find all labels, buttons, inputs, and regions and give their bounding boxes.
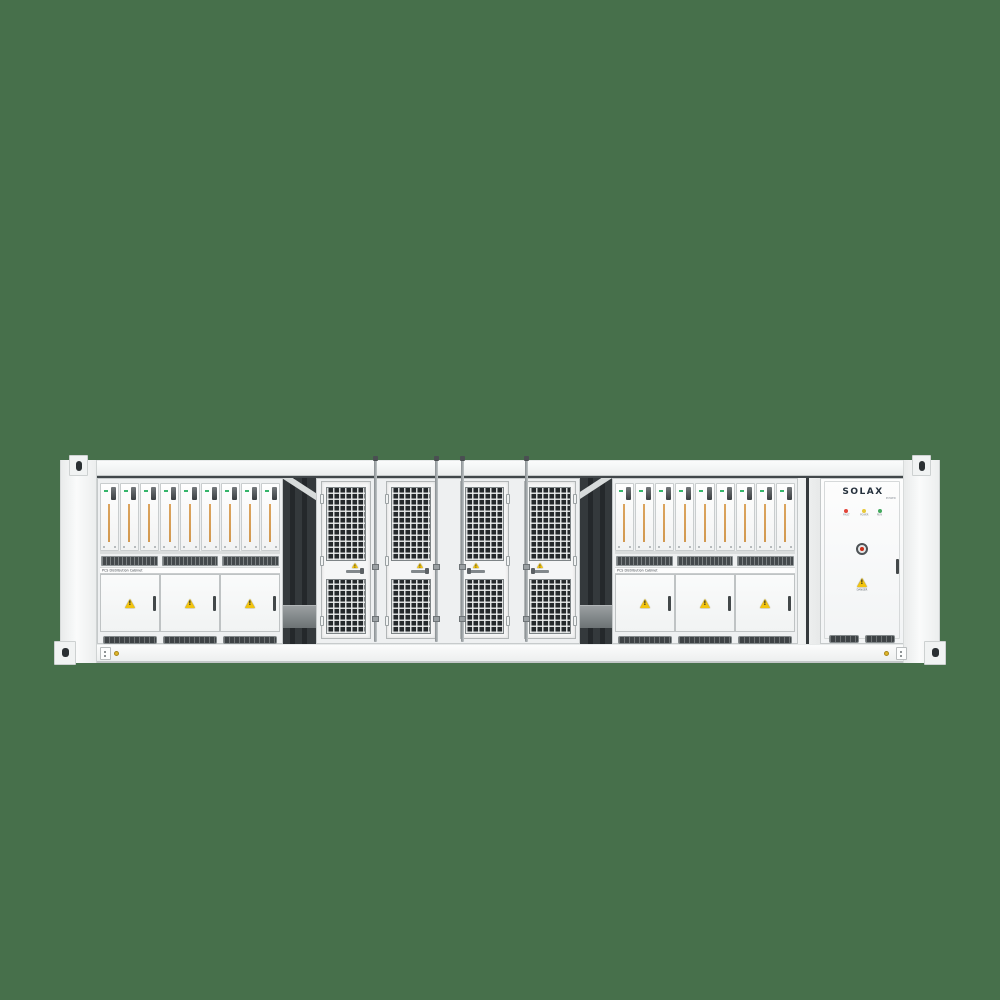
lock-rod-bracket xyxy=(433,616,440,622)
cabinet-door xyxy=(615,574,675,632)
module-status-led xyxy=(184,490,188,492)
module-status-led xyxy=(205,490,209,492)
door-lock-rod xyxy=(461,456,464,642)
module-stripe xyxy=(623,504,625,542)
module-screw xyxy=(698,546,700,548)
pcs-module xyxy=(776,483,795,551)
cabinet-door xyxy=(220,574,280,632)
module-stripe xyxy=(684,504,686,542)
bottom-rail xyxy=(60,644,940,663)
module-screw xyxy=(779,546,781,548)
mesh-screen-upper xyxy=(391,487,431,561)
module-status-led xyxy=(740,490,744,492)
lock-rod-bracket xyxy=(523,616,530,622)
door-hinge xyxy=(506,494,510,504)
module-screw xyxy=(669,546,671,548)
module-vent-slot xyxy=(111,487,116,500)
ground-point xyxy=(884,651,889,656)
module-vent-slot xyxy=(131,487,136,500)
vent-grille xyxy=(162,556,219,566)
module-screw xyxy=(719,546,721,548)
module-screw xyxy=(638,546,640,548)
vent-grille xyxy=(737,556,794,566)
module-screw xyxy=(244,546,246,548)
module-status-led xyxy=(760,490,764,492)
module-stripe xyxy=(249,504,251,542)
power-led-dot xyxy=(862,509,866,513)
module-screw xyxy=(790,546,792,548)
mesh-screen-lower xyxy=(465,579,504,634)
pcs-module xyxy=(261,483,280,551)
pillar-slit xyxy=(806,478,809,644)
rack-bottom-vents xyxy=(103,636,277,644)
warning-triangle-icon xyxy=(760,599,770,608)
handle-pivot xyxy=(467,568,471,574)
module-screw xyxy=(143,546,145,548)
warning-triangle-icon xyxy=(473,563,479,568)
service-plate xyxy=(100,647,111,660)
cabinet-bottom-vents xyxy=(829,635,895,643)
pcs-module-row xyxy=(615,483,795,551)
pcs-module xyxy=(140,483,159,551)
module-screw xyxy=(154,546,156,548)
cabinet-door xyxy=(675,574,735,632)
module-screw xyxy=(759,546,761,548)
mesh-screen-upper xyxy=(465,487,504,561)
danger-label: DANGER xyxy=(842,589,883,592)
module-status-led xyxy=(225,490,229,492)
module-vent-slot xyxy=(151,487,156,500)
module-screw xyxy=(174,546,176,548)
module-screw xyxy=(114,546,116,548)
module-status-led xyxy=(124,490,128,492)
lock-rod-bracket xyxy=(433,564,440,570)
cabinet-door-handle xyxy=(213,596,216,611)
diagonal-brace xyxy=(580,478,612,501)
warning-triangle-icon xyxy=(185,599,195,608)
module-status-led xyxy=(699,490,703,492)
pcs-module xyxy=(120,483,139,551)
casting-hole xyxy=(62,648,69,657)
vent-grille xyxy=(865,635,895,643)
lock-rod-bracket xyxy=(372,564,379,570)
module-status-led xyxy=(780,490,784,492)
handle-pivot xyxy=(360,568,364,574)
module-stripe xyxy=(229,504,231,542)
scene-background: PCS Distribution Cabinet PCS Distributio… xyxy=(0,0,1000,1000)
fault-led-dot xyxy=(844,509,848,513)
lock-rod-bracket xyxy=(523,564,530,570)
pcs-module xyxy=(160,483,179,551)
cable-duct xyxy=(580,605,612,628)
module-vent-slot xyxy=(646,487,651,500)
door-hinge xyxy=(385,556,389,566)
danger-sticker: DANGER xyxy=(821,578,903,594)
module-stripe xyxy=(704,504,706,542)
module-screw xyxy=(629,546,631,548)
module-stripe xyxy=(169,504,171,542)
module-screw xyxy=(134,546,136,548)
pcs-module xyxy=(615,483,634,551)
module-vent-slot xyxy=(686,487,691,500)
power-led-label: POWER xyxy=(860,514,868,516)
cabinet-door-handle xyxy=(153,596,156,611)
door-hinge xyxy=(573,616,577,626)
door-hinge xyxy=(385,616,389,626)
module-screw xyxy=(204,546,206,548)
door-hinge xyxy=(320,494,324,504)
pcs-module xyxy=(100,483,119,551)
module-status-led xyxy=(265,490,269,492)
warning-triangle-icon xyxy=(537,563,543,568)
vent-grille xyxy=(222,556,279,566)
rack-rail xyxy=(615,551,795,554)
vent-grille xyxy=(677,556,734,566)
pcs-rack-left: PCS Distribution Cabinet xyxy=(97,478,283,644)
module-stripe xyxy=(643,504,645,542)
module-stripe xyxy=(128,504,130,542)
control-cabinet-door xyxy=(824,481,900,639)
module-screw xyxy=(618,546,620,548)
cabinet-door xyxy=(100,574,160,632)
pcs-module xyxy=(241,483,260,551)
cabinet-door-handle xyxy=(896,559,899,574)
rack-bottom-vents xyxy=(618,636,792,644)
module-stripe xyxy=(764,504,766,542)
frame-pillar xyxy=(798,478,820,644)
module-vent-slot xyxy=(666,487,671,500)
door-hinge xyxy=(506,616,510,626)
mesh-door xyxy=(524,481,576,639)
module-stripe xyxy=(784,504,786,542)
module-stripe xyxy=(744,504,746,542)
door-lock-rod xyxy=(525,456,528,642)
mesh-screen-upper xyxy=(326,487,366,561)
module-vent-slot xyxy=(767,487,772,500)
module-screw xyxy=(770,546,772,548)
module-vent-slot xyxy=(192,487,197,500)
pcs-module xyxy=(675,483,694,551)
mesh-door-handle xyxy=(469,570,485,573)
handle-pivot xyxy=(531,568,535,574)
corner-post-right xyxy=(903,460,940,663)
cabinet-door-handle xyxy=(668,596,671,611)
module-screw xyxy=(123,546,125,548)
lock-rod-bracket xyxy=(372,616,379,622)
mesh-screen-upper xyxy=(529,487,571,561)
pcs-module xyxy=(180,483,199,551)
pcs-module-row xyxy=(100,483,280,551)
door-lock-rod xyxy=(435,456,438,642)
pcs-module xyxy=(655,483,674,551)
handle-pivot xyxy=(425,568,429,574)
lock-rod-cap xyxy=(524,456,529,461)
module-stripe xyxy=(269,504,271,542)
vent-grille xyxy=(101,556,158,566)
vent-grille xyxy=(616,556,673,566)
frame-gap-right xyxy=(580,478,612,644)
vent-grille xyxy=(223,636,277,644)
vent-grille xyxy=(163,636,217,644)
module-screw xyxy=(649,546,651,548)
module-status-led xyxy=(720,490,724,492)
module-stripe xyxy=(148,504,150,542)
casting-hole xyxy=(919,461,925,471)
pcs-module xyxy=(201,483,220,551)
mesh-screen-lower xyxy=(326,579,366,634)
mesh-door-handle xyxy=(533,570,549,573)
vent-grille xyxy=(103,636,157,644)
casting-hole xyxy=(76,461,82,471)
module-status-led xyxy=(679,490,683,492)
module-vent-slot xyxy=(727,487,732,500)
cabinet-door-handle xyxy=(788,596,791,611)
lock-rod-cap xyxy=(434,456,439,461)
rack-rail xyxy=(100,551,280,554)
run-led: RUN xyxy=(874,509,885,519)
module-screw xyxy=(750,546,752,548)
casting-hole xyxy=(932,648,939,657)
module-status-led xyxy=(639,490,643,492)
module-status-led xyxy=(245,490,249,492)
module-vent-slot xyxy=(747,487,752,500)
frame-gap-left xyxy=(280,478,316,644)
warning-triangle-icon xyxy=(857,578,867,587)
rack-label-strip: PCS Distribution Cabinet xyxy=(615,567,795,574)
rack-label-strip: PCS Distribution Cabinet xyxy=(100,567,280,574)
module-screw xyxy=(264,546,266,548)
estop-ring xyxy=(856,543,868,555)
module-screw xyxy=(103,546,105,548)
brand-block: SOLAX POWER xyxy=(821,488,905,503)
cabinet-door-handle xyxy=(273,596,276,611)
door-hinge xyxy=(320,616,324,626)
status-led-row: FAULTPOWERRUN xyxy=(839,509,885,519)
solax-logo-sub: POWER xyxy=(858,497,896,500)
module-stripe xyxy=(108,504,110,542)
module-screw xyxy=(710,546,712,548)
cabinet-door xyxy=(160,574,220,632)
lock-rod-cap xyxy=(460,456,465,461)
module-vent-slot xyxy=(272,487,277,500)
service-plate xyxy=(896,647,907,660)
fault-led-label: FAULT xyxy=(843,514,850,516)
storage-container: PCS Distribution Cabinet PCS Distributio… xyxy=(60,455,940,665)
module-screw xyxy=(183,546,185,548)
module-screw xyxy=(224,546,226,548)
door-hinge xyxy=(320,556,324,566)
rack-vent-band xyxy=(616,556,794,566)
module-vent-slot xyxy=(787,487,792,500)
module-status-led xyxy=(659,490,663,492)
lock-rod-bracket xyxy=(459,564,466,570)
top-rail xyxy=(60,460,940,476)
rack-label: PCS Distribution Cabinet xyxy=(617,569,657,572)
module-stripe xyxy=(189,504,191,542)
warning-triangle-icon xyxy=(640,599,650,608)
mesh-door xyxy=(460,481,509,639)
module-screw xyxy=(689,546,691,548)
vent-grille xyxy=(618,636,672,644)
vent-grille xyxy=(738,636,792,644)
battery-bay-panel xyxy=(316,478,580,644)
diagonal-brace xyxy=(280,478,316,502)
module-vent-slot xyxy=(707,487,712,500)
pcs-module xyxy=(716,483,735,551)
module-screw xyxy=(163,546,165,548)
lock-rod-bracket xyxy=(459,616,466,622)
door-hinge xyxy=(385,494,389,504)
rack-doors xyxy=(615,574,795,632)
warning-triangle-icon xyxy=(700,599,710,608)
mesh-screen-lower xyxy=(391,579,431,634)
module-stripe xyxy=(724,504,726,542)
corner-post-left xyxy=(60,460,97,663)
lock-rod-cap xyxy=(373,456,378,461)
mesh-door xyxy=(386,481,436,639)
run-led-label: RUN xyxy=(877,514,882,516)
ground-point xyxy=(114,651,119,656)
estop-core xyxy=(860,547,864,551)
cable-duct xyxy=(280,605,316,628)
pcs-module xyxy=(736,483,755,551)
module-screw xyxy=(658,546,660,548)
module-screw xyxy=(678,546,680,548)
module-screw xyxy=(730,546,732,548)
pcs-rack-right: PCS Distribution Cabinet xyxy=(612,478,798,644)
module-screw xyxy=(275,546,277,548)
module-status-led xyxy=(104,490,108,492)
module-status-led xyxy=(619,490,623,492)
vent-grille xyxy=(678,636,732,644)
module-screw xyxy=(195,546,197,548)
rack-label: PCS Distribution Cabinet xyxy=(102,569,142,572)
module-screw xyxy=(255,546,257,548)
pcs-module xyxy=(756,483,775,551)
module-stripe xyxy=(663,504,665,542)
module-vent-slot xyxy=(212,487,217,500)
mesh-screen-lower xyxy=(529,579,571,634)
mesh-door xyxy=(321,481,371,639)
rack-doors xyxy=(100,574,280,632)
door-hinge xyxy=(506,556,510,566)
module-vent-slot xyxy=(232,487,237,500)
cabinet-door-handle xyxy=(728,596,731,611)
warning-triangle-icon xyxy=(352,563,358,568)
module-vent-slot xyxy=(171,487,176,500)
door-hinge xyxy=(573,556,577,566)
run-led-dot xyxy=(878,509,882,513)
module-screw xyxy=(235,546,237,548)
rack-vent-band xyxy=(101,556,279,566)
power-led: POWER xyxy=(855,509,874,519)
emergency-stop-button xyxy=(821,543,903,555)
warning-triangle-icon xyxy=(245,599,255,608)
pcs-module xyxy=(695,483,714,551)
pcs-module xyxy=(635,483,654,551)
fault-led: FAULT xyxy=(839,509,854,519)
module-screw xyxy=(739,546,741,548)
door-hinge xyxy=(573,494,577,504)
pcs-module xyxy=(221,483,240,551)
door-lock-rod xyxy=(374,456,377,642)
module-status-led xyxy=(144,490,148,492)
control-cabinet: SOLAX POWER FAULTPOWERRUN DANGER xyxy=(820,478,904,644)
warning-triangle-icon xyxy=(125,599,135,608)
module-screw xyxy=(215,546,217,548)
module-vent-slot xyxy=(626,487,631,500)
module-vent-slot xyxy=(252,487,257,500)
warning-triangle-icon xyxy=(417,563,423,568)
module-status-led xyxy=(164,490,168,492)
module-stripe xyxy=(209,504,211,542)
cabinet-door xyxy=(735,574,795,632)
vent-grille xyxy=(829,635,859,643)
